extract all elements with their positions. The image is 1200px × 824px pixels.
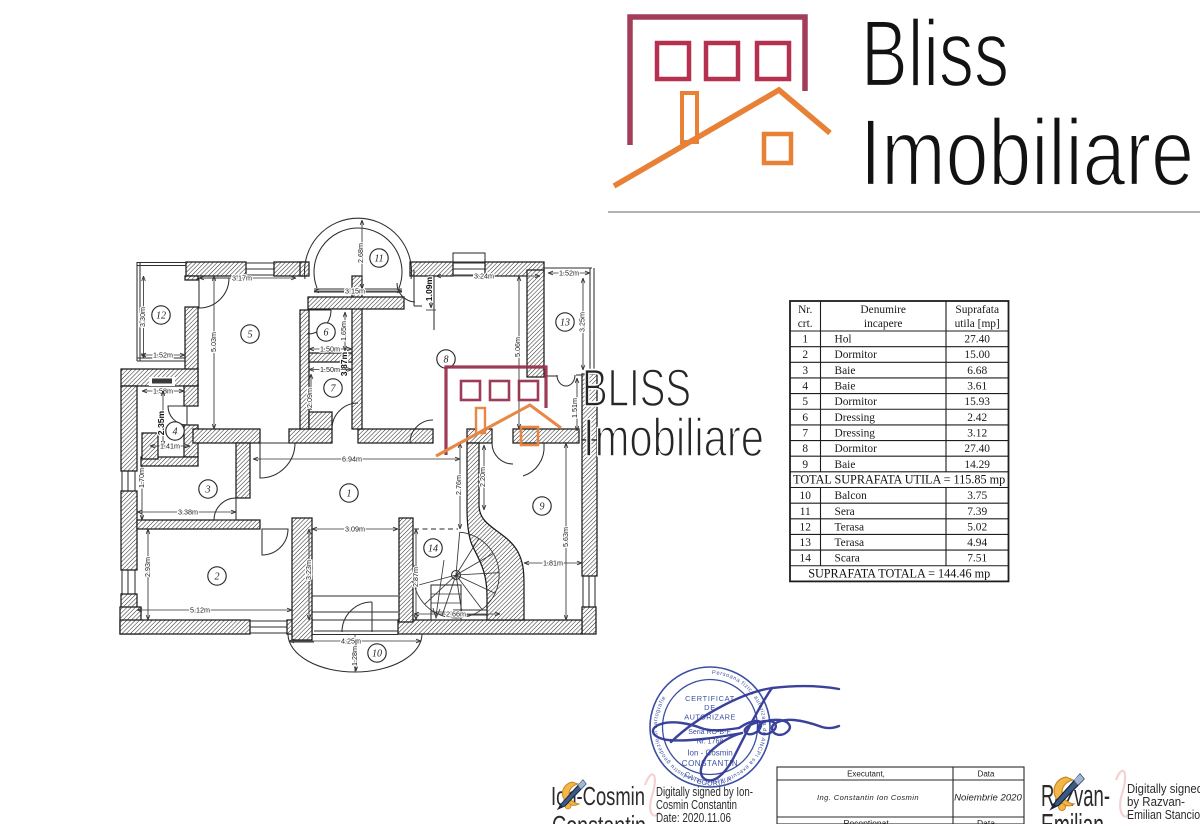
svg-text:6: 6 bbox=[324, 328, 329, 339]
svg-text:1.50m: 1.50m bbox=[320, 345, 340, 354]
svg-text:crt.: crt. bbox=[798, 318, 813, 330]
svg-text:Suprafata: Suprafata bbox=[955, 304, 999, 316]
svg-text:Terasa: Terasa bbox=[835, 537, 865, 549]
svg-text:5.02: 5.02 bbox=[967, 521, 987, 533]
svg-text:14.29: 14.29 bbox=[964, 459, 990, 471]
svg-text:6.94m: 6.94m bbox=[342, 455, 362, 464]
svg-text:13: 13 bbox=[560, 318, 570, 329]
svg-text:1.50m: 1.50m bbox=[320, 365, 340, 374]
svg-text:8: 8 bbox=[444, 355, 449, 366]
svg-text:7.51: 7.51 bbox=[967, 553, 987, 565]
svg-text:8: 8 bbox=[802, 443, 808, 455]
svg-text:27.40: 27.40 bbox=[964, 443, 990, 455]
svg-text:Dressing: Dressing bbox=[835, 412, 876, 424]
svg-text:3.75: 3.75 bbox=[967, 490, 987, 502]
svg-text:27.40: 27.40 bbox=[964, 334, 990, 346]
svg-text:3.30m: 3.30m bbox=[138, 307, 147, 327]
svg-text:Data: Data bbox=[977, 818, 995, 824]
svg-text:5.06m: 5.06m bbox=[513, 337, 522, 357]
svg-text:1.52m: 1.52m bbox=[153, 351, 173, 360]
svg-text:13: 13 bbox=[800, 537, 812, 549]
svg-text:2: 2 bbox=[215, 572, 220, 583]
svg-text:1: 1 bbox=[347, 489, 352, 500]
svg-text:1.52m: 1.52m bbox=[559, 269, 579, 278]
svg-text:3.61: 3.61 bbox=[967, 381, 987, 393]
svg-text:3.15m: 3.15m bbox=[345, 287, 365, 296]
svg-text:incapere: incapere bbox=[864, 318, 903, 330]
svg-text:3: 3 bbox=[802, 365, 808, 377]
svg-text:5.12m: 5.12m bbox=[190, 606, 210, 615]
svg-text:2.68m: 2.68m bbox=[356, 243, 365, 263]
svg-text:9: 9 bbox=[540, 502, 545, 513]
svg-text:1.65m: 1.65m bbox=[339, 321, 348, 341]
svg-text:2.87m: 2.87m bbox=[411, 567, 420, 587]
svg-text:Emilian Stanciou: Emilian Stanciou bbox=[1127, 808, 1200, 822]
svg-text:Digitally signed by Ion-: Digitally signed by Ion- bbox=[656, 785, 753, 799]
svg-text:Bliss: Bliss bbox=[861, 1, 1009, 107]
svg-text:Imobiliare: Imobiliare bbox=[583, 408, 764, 468]
svg-text:Terasa: Terasa bbox=[835, 521, 865, 533]
svg-text:SUPRAFATA TOTALA = 144.46 mp: SUPRAFATA TOTALA = 144.46 mp bbox=[808, 567, 990, 581]
svg-text:14: 14 bbox=[800, 553, 812, 565]
svg-text:14: 14 bbox=[428, 544, 438, 555]
svg-text:Scara: Scara bbox=[835, 553, 860, 565]
svg-text:3.17m: 3.17m bbox=[232, 274, 252, 283]
svg-text:Dormitor: Dormitor bbox=[835, 349, 878, 361]
svg-text:9: 9 bbox=[802, 459, 808, 471]
svg-text:2.93m: 2.93m bbox=[143, 557, 152, 577]
svg-text:3.38m: 3.38m bbox=[178, 508, 198, 517]
svg-text:2.76m: 2.76m bbox=[454, 475, 463, 495]
svg-text:3: 3 bbox=[205, 485, 211, 496]
svg-text:1.51m: 1.51m bbox=[570, 398, 579, 418]
svg-text:Baie: Baie bbox=[835, 459, 856, 471]
svg-text:1: 1 bbox=[802, 334, 808, 346]
svg-text:5.03m: 5.03m bbox=[209, 332, 218, 352]
svg-text:CERTIFICAT: CERTIFICAT bbox=[685, 694, 735, 703]
svg-text:Ing. Constantin Ion Cosmin: Ing. Constantin Ion Cosmin bbox=[817, 793, 919, 802]
svg-text:Sera: Sera bbox=[835, 506, 855, 518]
svg-text:12: 12 bbox=[800, 521, 812, 533]
svg-text:Dormitor: Dormitor bbox=[835, 443, 878, 455]
svg-text:Data: Data bbox=[978, 770, 995, 779]
svg-text:11: 11 bbox=[800, 506, 811, 518]
svg-text:5.63m: 5.63m bbox=[561, 527, 570, 547]
svg-text:5: 5 bbox=[248, 330, 253, 341]
svg-text:6.68: 6.68 bbox=[967, 365, 987, 377]
svg-text:2: 2 bbox=[802, 349, 808, 361]
svg-text:Dormitor: Dormitor bbox=[835, 396, 878, 408]
svg-text:Baie: Baie bbox=[835, 365, 856, 377]
svg-text:Digitally signed: Digitally signed bbox=[1127, 782, 1200, 796]
svg-text:10: 10 bbox=[372, 649, 382, 660]
svg-text:1.28m: 1.28m bbox=[350, 646, 359, 666]
svg-text:Dressing: Dressing bbox=[835, 428, 876, 440]
svg-text:7: 7 bbox=[802, 428, 808, 440]
svg-text:by Razvan-: by Razvan- bbox=[1127, 795, 1185, 809]
svg-text:2.09m: 2.09m bbox=[305, 388, 314, 408]
svg-text:2.66m: 2.66m bbox=[446, 610, 466, 619]
svg-text:1.81m: 1.81m bbox=[543, 559, 563, 568]
svg-text:Hol: Hol bbox=[835, 334, 852, 346]
svg-text:10: 10 bbox=[800, 490, 812, 502]
svg-text:Baie: Baie bbox=[835, 381, 856, 393]
svg-text:2.35m: 2.35m bbox=[156, 410, 166, 435]
svg-text:utila [mp]: utila [mp] bbox=[955, 318, 1000, 330]
svg-text:Executant,: Executant, bbox=[847, 770, 885, 779]
svg-text:3.23m: 3.23m bbox=[304, 560, 313, 580]
svg-text:3.12: 3.12 bbox=[967, 428, 987, 440]
svg-text:Imobiliare: Imobiliare bbox=[860, 100, 1194, 206]
svg-text:TOTAL SUPRAFATA UTILA = 115.85: TOTAL SUPRAFATA UTILA = 115.85 mp bbox=[793, 473, 1005, 487]
svg-text:Constantin: Constantin bbox=[552, 810, 646, 824]
svg-text:1.70m: 1.70m bbox=[137, 468, 146, 488]
svg-text:15.00: 15.00 bbox=[964, 349, 990, 361]
svg-text:Noiembrie 2020: Noiembrie 2020 bbox=[954, 793, 1022, 804]
svg-text:5: 5 bbox=[802, 396, 808, 408]
svg-text:4: 4 bbox=[173, 427, 178, 438]
svg-text:2.42: 2.42 bbox=[967, 412, 987, 424]
svg-text:12: 12 bbox=[156, 311, 166, 322]
svg-text:1.41m: 1.41m bbox=[160, 442, 180, 451]
svg-text:4.94: 4.94 bbox=[967, 537, 987, 549]
svg-text:Cosmin Constantin: Cosmin Constantin bbox=[656, 798, 737, 812]
svg-text:1.09m: 1.09m bbox=[424, 276, 434, 301]
svg-text:3.25m: 3.25m bbox=[578, 312, 587, 332]
svg-text:3.09m: 3.09m bbox=[345, 525, 365, 534]
svg-text:4.25m: 4.25m bbox=[341, 637, 361, 646]
svg-text:3.87m: 3.87m bbox=[339, 351, 349, 376]
svg-text:7.39: 7.39 bbox=[967, 506, 987, 518]
svg-text:6: 6 bbox=[802, 412, 808, 424]
svg-text:Receptionat: Receptionat bbox=[843, 818, 889, 824]
svg-text:4: 4 bbox=[802, 381, 808, 393]
svg-text:Balcon: Balcon bbox=[835, 490, 868, 502]
svg-text:Denumire: Denumire bbox=[860, 304, 906, 316]
svg-text:3.24m: 3.24m bbox=[474, 272, 494, 281]
svg-text:Nr.: Nr. bbox=[798, 304, 812, 316]
svg-text:11: 11 bbox=[374, 254, 383, 265]
svg-text:2.20m: 2.20m bbox=[478, 467, 487, 487]
svg-text:15.93: 15.93 bbox=[964, 396, 990, 408]
